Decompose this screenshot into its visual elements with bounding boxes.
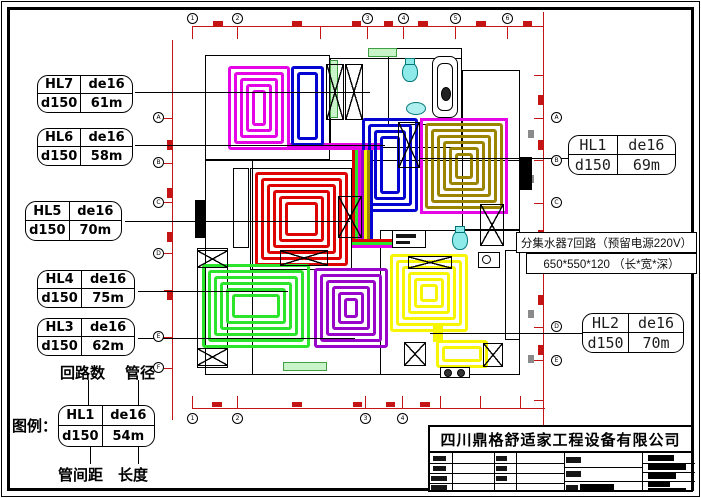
loop-id: HL5: [26, 202, 70, 221]
dim-text-blob: [538, 140, 543, 150]
appliance-hatch: [404, 342, 426, 366]
loop-spacing: d150: [583, 333, 629, 352]
dim-tick: [534, 400, 543, 401]
loop-spacing: d150: [38, 147, 81, 165]
loop-spacing: d150: [38, 337, 82, 355]
dim-tick: [237, 27, 238, 39]
balcony-hatch: [197, 250, 228, 268]
axis-bubble: D: [551, 321, 562, 332]
dim-text-blob: [386, 402, 395, 407]
manifold-label-blob: [396, 234, 416, 238]
field-value-bar: [580, 484, 614, 491]
title-block-line: [452, 453, 453, 492]
field-label-blob: [433, 466, 446, 471]
balcony-hatch: [197, 348, 228, 366]
loop-pipe: de16: [81, 129, 132, 147]
loop-id: HL2: [583, 314, 629, 333]
dim-tick: [164, 368, 173, 369]
axis-bubble: 4: [398, 13, 409, 24]
loop-length: 70m: [70, 221, 121, 240]
axis-bubble: 6: [502, 13, 513, 24]
table-hatch: [280, 250, 328, 266]
shaft-hatch: [480, 204, 504, 246]
toilet: [452, 230, 468, 250]
title-block-line: [564, 467, 642, 468]
dim-tick: [534, 360, 543, 361]
legend-callout-pipe: 管径: [125, 362, 155, 383]
dim-tick: [164, 163, 173, 164]
axis-bubble: B: [153, 157, 164, 168]
legend-callout-length: 长度: [118, 464, 148, 485]
bathtub: [432, 56, 458, 118]
kitchen-counter: [505, 250, 520, 340]
dim-tick: [534, 203, 543, 204]
axis-bubble: 2: [232, 13, 243, 24]
leader-hl6: [135, 145, 385, 146]
manifold-note-2: 650*550*120 （长*宽*深）: [526, 253, 697, 274]
pipe-bundle: [352, 245, 392, 248]
field-label-blob: [496, 476, 507, 481]
wall-solid-left: [195, 200, 205, 238]
legend-connector: [88, 380, 89, 405]
dim-tick: [534, 75, 543, 76]
loop-length: 70m: [629, 333, 683, 352]
leader-hl3: [138, 338, 355, 339]
field-value-bar: [648, 482, 670, 487]
title-block-line: [564, 481, 642, 482]
title-block-line: [430, 473, 564, 474]
loop-pipe: de16: [629, 314, 683, 333]
dim-tick: [507, 27, 508, 39]
loop-length: 62m: [82, 337, 134, 355]
dim-tick: [192, 396, 193, 408]
dim-tick: [403, 27, 404, 39]
loop-spacing: d150: [38, 289, 82, 307]
loop-id: HL1: [59, 406, 103, 426]
axis-bubble: 3: [360, 413, 371, 424]
wall-solid-right: [520, 157, 532, 190]
leader-hl2: [430, 333, 582, 334]
loop-id: HL7: [38, 76, 81, 94]
loop-label-hl7: HL7 de16 d150 61m: [37, 75, 133, 113]
axis-bubble: 2: [232, 413, 243, 424]
loop-id: HL1: [569, 136, 618, 155]
dim-line-left: [172, 40, 173, 420]
wash-basin: [406, 102, 426, 115]
title-block-line: [516, 453, 517, 492]
dim-text-blob: [352, 21, 361, 26]
dim-text-blob: [213, 21, 223, 26]
coil-hl2-kitchen: [436, 340, 488, 368]
dim-tick: [367, 27, 368, 39]
loop-label-hl1: HL1 de16 d150 69m: [568, 135, 676, 175]
field-label-blob: [431, 485, 447, 490]
loop-pipe: de16: [103, 406, 154, 426]
manifold-label-blob: [396, 241, 410, 244]
stove: [440, 367, 470, 378]
title-block-line: [494, 453, 495, 492]
title-block-line: [430, 483, 564, 484]
drawing-sheet: 1 2 3 4 5 6 1 2 3 4 A B C D E F A B C D …: [0, 0, 701, 498]
dim-text-blob: [167, 232, 172, 242]
loop-pipe: de16: [81, 76, 132, 94]
title-block: 四川鼎格舒适家工程设备有限公司: [428, 425, 693, 492]
axis-bubble: D: [153, 248, 164, 259]
axis-bubble: 4: [397, 413, 408, 424]
dim-tick: [455, 27, 456, 39]
coil-hl6-a: [291, 66, 324, 146]
loop-pipe: de16: [82, 271, 134, 289]
axis-bubble: B: [551, 155, 562, 166]
dim-tick: [164, 118, 173, 119]
kitchen-sink: [478, 252, 500, 268]
axis-bubble: C: [153, 197, 164, 208]
loop-id: HL6: [38, 129, 81, 147]
title-block-line: [564, 453, 565, 492]
leader-hl7: [135, 92, 370, 93]
dim-line-right: [543, 12, 544, 447]
field-label-blob: [566, 471, 581, 477]
loop-pipe: de16: [618, 136, 675, 155]
loop-label-hl4: HL4 de16 d150 75m: [37, 270, 135, 308]
shaft-hatch: [398, 122, 420, 168]
legend-callout-spacing: 管间距: [58, 464, 103, 485]
dim-text-blob: [353, 402, 362, 407]
leader-hl4: [138, 291, 288, 292]
loop-label-hl6: HL6 de16 d150 58m: [37, 128, 133, 166]
company-name: 四川鼎格舒适家工程设备有限公司: [430, 427, 691, 453]
coil-hl7: [228, 66, 290, 150]
dim-tick: [520, 396, 521, 408]
dim-text-blob: [384, 21, 393, 26]
dim-tick: [543, 27, 544, 39]
field-label-blob: [496, 456, 507, 461]
legend-callout-loops: 回路数: [60, 362, 105, 383]
dim-text-blob: [538, 95, 543, 105]
dim-tick: [480, 396, 481, 408]
dim-tick: [534, 327, 543, 328]
coil-hl4: [202, 264, 310, 348]
loop-spacing: d150: [38, 94, 81, 112]
leader-hl1: [420, 158, 568, 159]
dim-text-blob: [528, 310, 534, 318]
dim-tick: [164, 202, 173, 203]
legend-title: 图例：: [12, 415, 57, 436]
dim-text-blob: [167, 188, 172, 198]
loop-length: 58m: [81, 147, 132, 165]
loop-pipe: de16: [70, 202, 121, 221]
dim-text-blob: [523, 21, 532, 26]
dim-tick: [237, 396, 238, 408]
coil-hl1: [425, 123, 503, 209]
dim-tick: [365, 396, 366, 408]
loop-spacing: d150: [59, 426, 103, 446]
loop-id: HL4: [38, 271, 82, 289]
loop-pipe: de16: [82, 319, 134, 337]
dim-line-bottom: [192, 408, 545, 409]
axis-bubble: E: [153, 331, 164, 342]
field-value-bar: [648, 488, 686, 492]
pipe-bundle: [370, 150, 373, 242]
loop-spacing: d150: [569, 155, 618, 174]
axis-bubble: C: [551, 197, 562, 208]
field-label-blob: [431, 476, 447, 481]
dim-tick: [534, 160, 543, 161]
toilet: [402, 62, 418, 82]
dim-tick: [192, 27, 193, 39]
axis-bubble: 1: [187, 13, 198, 24]
loop-label-hl2: HL2 de16 d150 70m: [582, 313, 684, 353]
dim-text-blob: [292, 402, 302, 407]
legend-connector: [138, 447, 139, 464]
axis-bubble: A: [153, 112, 164, 123]
dim-text-blob: [538, 295, 543, 305]
dim-text-blob: [212, 402, 222, 407]
loop-label-hl5: HL5 de16 d150 70m: [25, 201, 122, 241]
axis-bubble: E: [551, 355, 562, 366]
manifold-note-1: 分集水器7回路（预留电源220V）: [516, 232, 697, 253]
dim-text-blob: [292, 21, 302, 26]
appliance-hatch: [483, 343, 503, 367]
dim-tick: [164, 253, 173, 254]
window-bottom: [283, 362, 327, 371]
dim-text-blob: [538, 345, 543, 355]
wall-closet: [233, 168, 249, 248]
window-top: [368, 48, 397, 57]
field-label-blob: [433, 456, 446, 461]
loop-id: HL3: [38, 319, 82, 337]
axis-bubble: 1: [187, 413, 198, 424]
dim-text-blob: [418, 21, 428, 26]
loop-length: 61m: [81, 94, 132, 112]
title-block-line: [430, 463, 564, 464]
dim-text-blob: [528, 355, 534, 363]
legend-connector: [90, 447, 91, 464]
legend-connector: [138, 380, 139, 405]
axis-bubble: 3: [362, 13, 373, 24]
dim-tick: [402, 396, 403, 408]
field-label-blob: [566, 457, 581, 463]
shaft-hatch: [338, 196, 362, 238]
dim-tick: [320, 27, 321, 39]
manifold-box: [392, 230, 426, 248]
loop-label-hl3: HL3 de16 d150 62m: [37, 318, 135, 356]
loop-length: 69m: [618, 155, 675, 174]
dim-text-blob: [528, 130, 534, 138]
dim-tick: [534, 118, 543, 119]
dim-text-blob: [420, 402, 430, 407]
field-value-bar: [648, 455, 674, 461]
dim-text-blob: [476, 21, 486, 26]
leader-hl5: [125, 221, 350, 222]
coil-hl3: [314, 268, 388, 348]
field-label-blob: [566, 485, 578, 490]
table-hatch: [408, 256, 452, 269]
dim-tick: [440, 396, 441, 408]
loop-length: 54m: [103, 426, 154, 446]
field-value-bar: [648, 473, 676, 479]
field-label-blob: [496, 466, 507, 471]
axis-bubble: A: [551, 112, 562, 123]
loop-length: 75m: [82, 289, 134, 307]
field-value-bar: [648, 464, 686, 470]
loop-spacing: d150: [26, 221, 70, 240]
legend-sample-box: HL1 de16 d150 54m: [58, 405, 155, 447]
axis-bubble: 5: [450, 13, 461, 24]
